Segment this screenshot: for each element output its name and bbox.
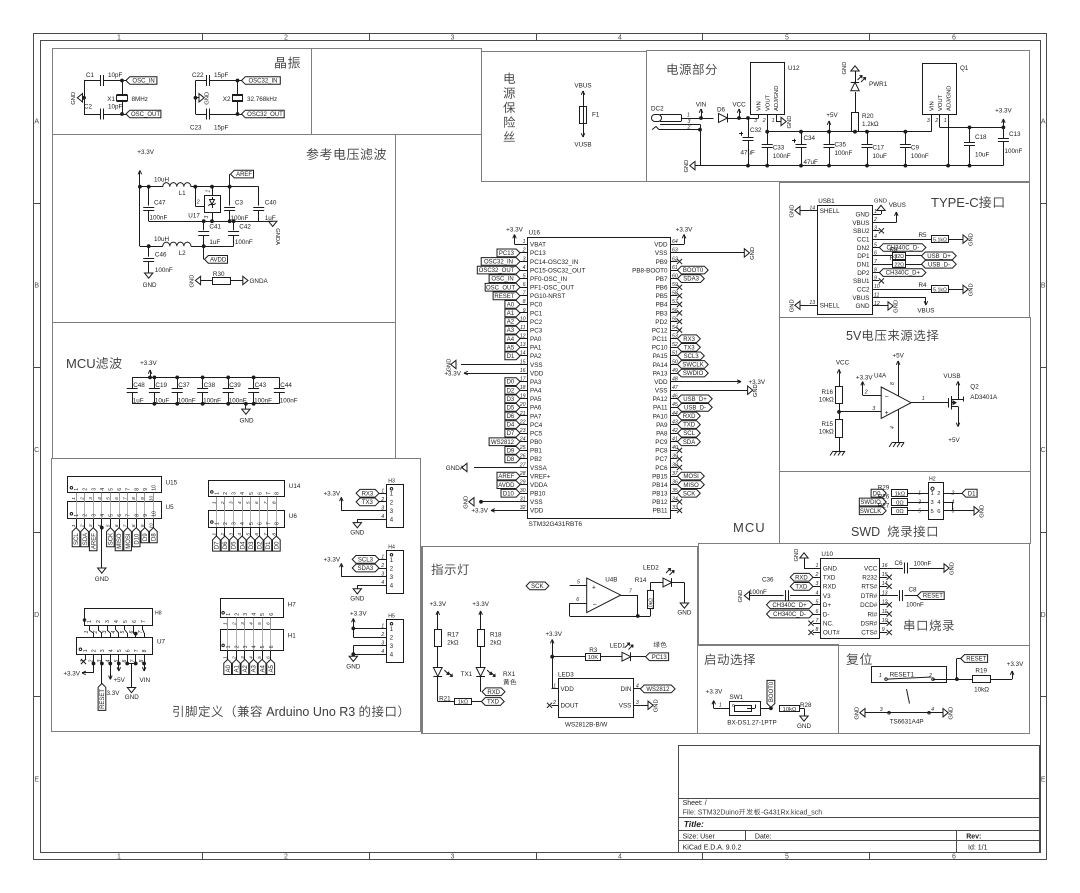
svg-text:13: 13 [882,590,888,596]
svg-text:PA1: PA1 [530,345,542,352]
svg-text:9: 9 [140,497,146,500]
svg-text:C46: C46 [155,251,167,258]
svg-text:MOSI: MOSI [683,474,699,480]
svg-text:GND: GND [980,505,986,518]
svg-text:SCK: SCK [683,491,695,497]
svg-text:VOUT: VOUT [938,94,944,111]
svg-text:VBUS: VBUS [889,202,906,209]
svg-text:6: 6 [125,649,131,652]
svg-text:3: 3 [91,514,97,517]
svg-text:2: 2 [93,630,99,634]
svg-text:6: 6 [269,613,275,616]
svg-text:5: 5 [105,497,111,500]
svg-text:LED3: LED3 [558,672,574,679]
svg-text:PC15-OSC32_OUT: PC15-OSC32_OUT [530,267,585,274]
svg-text:D7: D7 [507,431,515,437]
svg-text:100nF: 100nF [155,267,173,274]
svg-text:6: 6 [816,609,819,615]
svg-text:0: 0 [732,703,735,708]
svg-text:X1: X1 [107,96,115,103]
svg-text:OSC_IN: OSC_IN [491,277,513,283]
svg-text:+3.3V: +3.3V [350,610,367,617]
svg-text:C18: C18 [975,134,987,141]
svg-text:4: 4 [249,622,255,625]
svg-text:1uF: 1uF [209,239,220,246]
svg-text:7: 7 [263,501,269,504]
svg-text:1: 1 [215,522,221,525]
svg-text:+3.3V: +3.3V [137,149,154,156]
svg-text:PA8: PA8 [656,430,668,437]
svg-text:D5: D5 [232,541,238,549]
svg-text:VDD: VDD [561,686,575,693]
svg-text:H8: H8 [155,611,162,617]
svg-text:SCL3: SCL3 [358,558,374,564]
svg-text:CH340C_D+: CH340C_D+ [772,603,807,609]
svg-text:7: 7 [126,488,132,491]
svg-text:3: 3 [636,700,639,706]
svg-text:PB9: PB9 [656,259,668,266]
svg-text:GND: GND [969,283,975,296]
svg-text:0Ω: 0Ω [896,509,904,515]
svg-text:4: 4 [252,645,258,648]
svg-text:9: 9 [874,276,877,282]
svg-text:3: 3 [381,506,384,512]
svg-text:3: 3 [931,500,934,506]
svg-text:2: 2 [934,118,938,124]
svg-text:4: 4 [252,613,258,616]
svg-text:Rev:: Rev: [966,834,981,841]
svg-text:PB5: PB5 [656,293,668,300]
svg-text:PA3: PA3 [530,379,542,386]
svg-text:4: 4 [100,488,106,491]
svg-text:7: 7 [141,620,147,623]
svg-text:3: 3 [232,492,238,495]
svg-text:1: 1 [553,684,556,690]
svg-text:WS2812: WS2812 [491,440,515,446]
svg-text:8: 8 [271,501,277,504]
svg-text:C38: C38 [204,382,216,389]
svg-text:1: 1 [879,673,882,679]
svg-text:VDD: VDD [530,508,544,515]
svg-text:A5: A5 [269,664,275,672]
svg-text:OUT#: OUT# [823,630,840,637]
svg-text:RX3: RX3 [362,491,374,497]
svg-text:GND: GND [684,160,690,173]
svg-text:Date:: Date: [755,834,772,841]
svg-text:PF1-OSC_OUT: PF1-OSC_OUT [530,285,574,292]
svg-text:R16: R16 [821,389,833,396]
svg-text:10kΩ: 10kΩ [783,707,797,713]
svg-text:GND: GND [790,205,796,218]
svg-text:4: 4 [381,514,384,520]
svg-text:DTR#: DTR# [861,593,878,600]
svg-text:KiCad E.D.A. 9.0.2: KiCad E.D.A. 9.0.2 [683,845,742,852]
svg-text:100nF: 100nF [203,397,221,404]
svg-text:+3.3V: +3.3V [63,671,80,678]
svg-text:D6: D6 [717,107,726,114]
svg-text:4: 4 [381,580,384,586]
svg-text:+3.3V: +3.3V [471,508,488,515]
svg-text:C40: C40 [265,200,277,207]
svg-text:+3.3V: +3.3V [1007,661,1024,668]
svg-text:VDD: VDD [654,242,668,249]
svg-text:1: 1 [205,190,211,193]
svg-text:AD3401A: AD3401A [970,394,998,401]
svg-text:L1: L1 [179,190,187,197]
svg-text:4: 4 [97,497,103,500]
svg-text:10: 10 [520,316,526,322]
svg-text:1: 1 [944,118,947,124]
svg-text:VBAT: VBAT [530,242,546,249]
svg-text:PC13: PC13 [652,655,668,661]
svg-text:GND: GND [823,565,837,572]
svg-text:GND: GND [205,92,211,105]
svg-text:H5: H5 [388,614,395,620]
svg-text:3: 3 [880,707,883,713]
svg-text:U5: U5 [166,504,175,511]
svg-text:15pF: 15pF [214,72,229,79]
svg-text:4: 4 [618,34,622,41]
svg-text:5.1kΩ: 5.1kΩ [933,237,947,243]
svg-text:1: 1 [223,622,229,625]
svg-text:10: 10 [148,496,154,502]
svg-text:PB11: PB11 [653,508,668,515]
svg-text:14: 14 [809,205,815,211]
svg-text:2: 2 [284,34,288,41]
svg-text:E: E [34,777,39,784]
svg-text:TXD: TXD [795,585,808,591]
svg-text:5: 5 [120,630,126,633]
svg-text:4: 4 [816,590,819,596]
svg-text:5: 5 [577,579,580,585]
svg-text:8: 8 [874,267,877,273]
svg-text:DC2: DC2 [651,106,664,113]
svg-text:1: 1 [215,492,221,495]
svg-text:PA2: PA2 [530,353,542,360]
svg-text:47uF: 47uF [741,150,756,157]
svg-text:13: 13 [809,300,815,306]
svg-text:H1: H1 [288,633,297,640]
svg-text:4: 4 [636,684,639,690]
svg-text:GND: GND [350,530,364,537]
svg-text:AREF: AREF [91,533,97,549]
svg-text:4: 4 [523,265,526,271]
svg-text:C22: C22 [192,72,204,79]
svg-text:+5V: +5V [892,353,904,360]
svg-text:CH340C_D+: CH340C_D+ [886,271,921,277]
svg-text:PA9: PA9 [656,422,668,429]
svg-text:2: 2 [380,497,384,503]
svg-text:PB14: PB14 [652,482,668,489]
svg-text:2: 2 [284,853,288,860]
svg-text:C43: C43 [255,382,267,389]
svg-text:5: 5 [785,34,789,41]
svg-text:22Ω: 22Ω [894,262,904,268]
svg-text:PC8: PC8 [655,448,668,455]
svg-text:C44: C44 [280,382,292,389]
svg-text:D3: D3 [507,397,515,403]
svg-text:100nF: 100nF [914,561,932,568]
svg-text:10kΩ: 10kΩ [974,687,989,694]
svg-text:U7: U7 [157,639,166,646]
svg-text:7: 7 [126,514,132,517]
svg-text:1: 1 [74,488,80,491]
svg-text:6: 6 [952,853,956,860]
svg-text:7: 7 [266,492,272,495]
svg-text:A0: A0 [507,303,515,309]
svg-text:8: 8 [275,522,281,525]
svg-text:GND: GND [797,723,811,730]
svg-text:TX1: TX1 [461,671,473,678]
svg-text:3: 3 [381,641,384,647]
svg-text:100nF: 100nF [150,214,168,221]
svg-text:GND: GND [346,664,360,671]
svg-text:R20: R20 [862,113,874,120]
svg-text:6: 6 [576,597,579,603]
svg-text:AREF: AREF [498,474,514,480]
svg-text:6: 6 [257,492,263,495]
svg-text:7: 7 [266,522,272,525]
svg-text:DOUT: DOUT [561,703,579,710]
svg-text:C: C [34,447,39,454]
svg-text:C34: C34 [804,135,816,142]
svg-text:2: 2 [928,673,932,679]
svg-text:+5V: +5V [114,677,126,684]
svg-text:SWD: SWD [851,525,880,539]
svg-text:DP1: DP1 [857,253,870,260]
svg-text:BOOT0: BOOT0 [769,681,775,702]
svg-text:5: 5 [918,508,921,514]
svg-text:8: 8 [890,382,896,385]
svg-text:SBU2: SBU2 [853,228,870,235]
svg-text:3: 3 [927,118,930,124]
svg-text:C35: C35 [835,142,847,149]
svg-text:U15: U15 [166,479,178,486]
svg-text:+3.3V: +3.3V [545,631,562,638]
svg-text:6: 6 [132,620,138,623]
svg-text:R18: R18 [490,632,502,639]
svg-text:5: 5 [249,522,255,525]
svg-text:2: 2 [522,248,526,254]
svg-text:GND: GND [125,694,139,701]
svg-text:BOOT0: BOOT0 [683,268,704,274]
svg-text:GND: GND [464,496,470,509]
svg-text:2: 2 [83,488,89,491]
svg-text:C2: C2 [84,104,93,111]
svg-text:R4: R4 [919,282,928,289]
svg-text:7: 7 [134,649,140,652]
svg-text:VSS: VSS [619,703,632,710]
svg-text:A1: A1 [507,311,515,317]
svg-text:GND: GND [95,576,109,583]
svg-text:CTS#: CTS# [861,630,878,637]
svg-text:WS2812: WS2812 [646,687,670,693]
svg-text:File: STM32Duino: File: STM32Duino [683,810,739,817]
svg-text:USB_D+: USB_D+ [683,397,707,403]
svg-text:PB6: PB6 [656,285,668,292]
svg-text:3: 3 [105,620,111,623]
svg-text:D6: D6 [507,414,515,420]
svg-text:+3.3V: +3.3V [706,689,723,696]
svg-text:+3.3V: +3.3V [323,490,340,497]
svg-text:V3: V3 [823,593,831,600]
svg-text:PC13: PC13 [530,250,546,257]
svg-text:Sheet: /: Sheet: / [683,800,707,807]
svg-text:SHELL: SHELL [820,303,840,310]
svg-text:VBUS: VBUS [917,308,934,315]
svg-text:VDD: VDD [654,379,668,386]
svg-text:10kΩ: 10kΩ [648,598,654,610]
svg-text:5: 5 [249,492,255,495]
svg-text:WS2812B-B/W: WS2812B-B/W [565,722,607,729]
svg-text:31: 31 [520,497,526,503]
svg-text:+3.3V: +3.3V [323,556,340,563]
svg-text:11: 11 [520,325,525,331]
svg-text:PC5: PC5 [530,430,543,437]
svg-text:C6: C6 [895,560,904,567]
svg-text:2: 2 [80,497,86,501]
svg-text:5: 5 [257,622,263,625]
svg-text:D: D [1041,612,1046,619]
svg-text:10: 10 [152,485,158,491]
svg-text:OSC32_IN: OSC32_IN [484,260,513,266]
svg-text:3: 3 [874,226,877,232]
svg-text:NC.: NC. [823,621,834,628]
svg-text:63: 63 [672,248,678,254]
svg-text:9: 9 [882,627,885,633]
svg-text:VCC: VCC [732,102,746,109]
svg-text:RI#: RI# [867,611,877,618]
svg-text:+3.3V: +3.3V [429,601,446,608]
svg-text:R19: R19 [975,668,987,675]
svg-text:A1: A1 [235,664,241,672]
svg-text:C1: C1 [86,72,95,79]
svg-text:B: B [34,283,39,290]
svg-text:CH340C_D-: CH340C_D- [773,612,806,618]
svg-text:GNDA: GNDA [274,228,280,245]
svg-text:C8: C8 [909,587,918,594]
svg-text:1: 1 [226,613,232,616]
svg-text:C13: C13 [1009,131,1021,138]
svg-text:GNDA: GNDA [250,278,269,285]
svg-text:D4: D4 [507,423,515,429]
svg-text:D2: D2 [257,541,263,549]
svg-text:5: 5 [109,514,115,517]
svg-text:2: 2 [762,118,766,124]
svg-text:SDA3: SDA3 [683,277,699,283]
svg-text:DCD#: DCD# [860,602,878,609]
svg-text:9: 9 [523,308,526,314]
svg-text:3: 3 [872,406,875,412]
svg-text:VDDA: VDDA [530,482,548,489]
svg-text:4: 4 [381,649,384,655]
svg-text:1: 1 [381,623,384,629]
svg-text:2: 2 [873,217,877,223]
svg-text:PC2: PC2 [530,319,543,326]
svg-text:4: 4 [240,492,246,495]
svg-text:SCK: SCK [109,533,115,545]
svg-text:CC1: CC1 [857,236,870,243]
svg-text:Arduino Uno R3: Arduino Uno R3 [266,705,355,719]
svg-text:VDD: VDD [530,370,544,377]
svg-text:USB_D-: USB_D- [684,406,706,412]
svg-text:RESET: RESET [100,689,106,709]
svg-text:LED2: LED2 [643,564,659,571]
svg-text:A2: A2 [507,320,515,326]
svg-text:8: 8 [275,492,281,495]
svg-text:R29: R29 [878,485,890,492]
svg-text:TYPE-C: TYPE-C [931,195,979,210]
svg-text:PF0-OSC_IN: PF0-OSC_IN [530,276,568,283]
svg-text:GND: GND [855,707,861,720]
svg-text:PA6: PA6 [530,405,542,412]
svg-text:PC13: PC13 [499,251,515,257]
svg-text:VSS: VSS [655,388,668,395]
svg-text:3: 3 [243,645,249,648]
svg-text:GND: GND [894,300,900,313]
svg-text:R3: R3 [589,647,598,654]
svg-text:4: 4 [100,514,106,517]
svg-text:GND: GND [794,549,800,562]
svg-text:MISO: MISO [683,483,699,489]
svg-text:16: 16 [520,368,526,374]
svg-text:+3.3V: +3.3V [140,360,157,367]
svg-text:1: 1 [719,703,722,709]
svg-text:11: 11 [874,292,879,298]
svg-text:C33: C33 [773,145,785,152]
svg-text:DSR#: DSR# [861,621,878,628]
svg-text:VSS: VSS [530,499,543,506]
svg-text:100nF: 100nF [178,397,196,404]
svg-text:PA14: PA14 [653,362,668,369]
svg-text:CC2: CC2 [857,287,870,294]
svg-text:4: 4 [111,630,117,633]
svg-text:R5: R5 [919,232,928,239]
svg-text:1kΩ: 1kΩ [458,700,469,706]
svg-text:−: − [885,394,889,401]
svg-text:VBUS: VBUS [852,220,869,227]
svg-text:10uF: 10uF [873,153,888,160]
svg-text:PC10: PC10 [652,345,668,352]
svg-text:8: 8 [134,514,140,517]
svg-text:SWDIO: SWDIO [683,371,704,377]
svg-text:PC14-OSC32_IN: PC14-OSC32_IN [530,259,579,266]
svg-text:2: 2 [937,491,940,497]
svg-text:USB1: USB1 [818,198,835,205]
svg-text:TXD: TXD [823,575,836,582]
svg-text:100nF: 100nF [835,150,853,157]
svg-text:1: 1 [71,497,77,500]
svg-text:RESET: RESET [923,594,943,600]
svg-text:MOSI: MOSI [126,533,132,549]
svg-text:Q2: Q2 [970,384,979,391]
svg-text:1.2kΩ: 1.2kΩ [862,121,879,128]
svg-text:A4: A4 [260,664,266,672]
svg-text:PA15: PA15 [653,353,668,360]
svg-text:2kΩ: 2kΩ [490,640,502,647]
svg-text:2kΩ: 2kΩ [447,640,459,647]
svg-text:R21: R21 [439,695,451,702]
svg-text:VIN: VIN [696,102,707,109]
svg-text:PA5: PA5 [530,396,542,403]
svg-text:1: 1 [87,620,93,623]
svg-text:+3.3V: +3.3V [444,370,461,377]
svg-text:C36: C36 [762,577,774,584]
svg-text:OSC32_IN: OSC32_IN [248,79,277,85]
svg-text:SWCLK: SWCLK [682,363,703,369]
svg-text:VUSB: VUSB [943,373,960,380]
svg-text:6: 6 [266,622,272,625]
